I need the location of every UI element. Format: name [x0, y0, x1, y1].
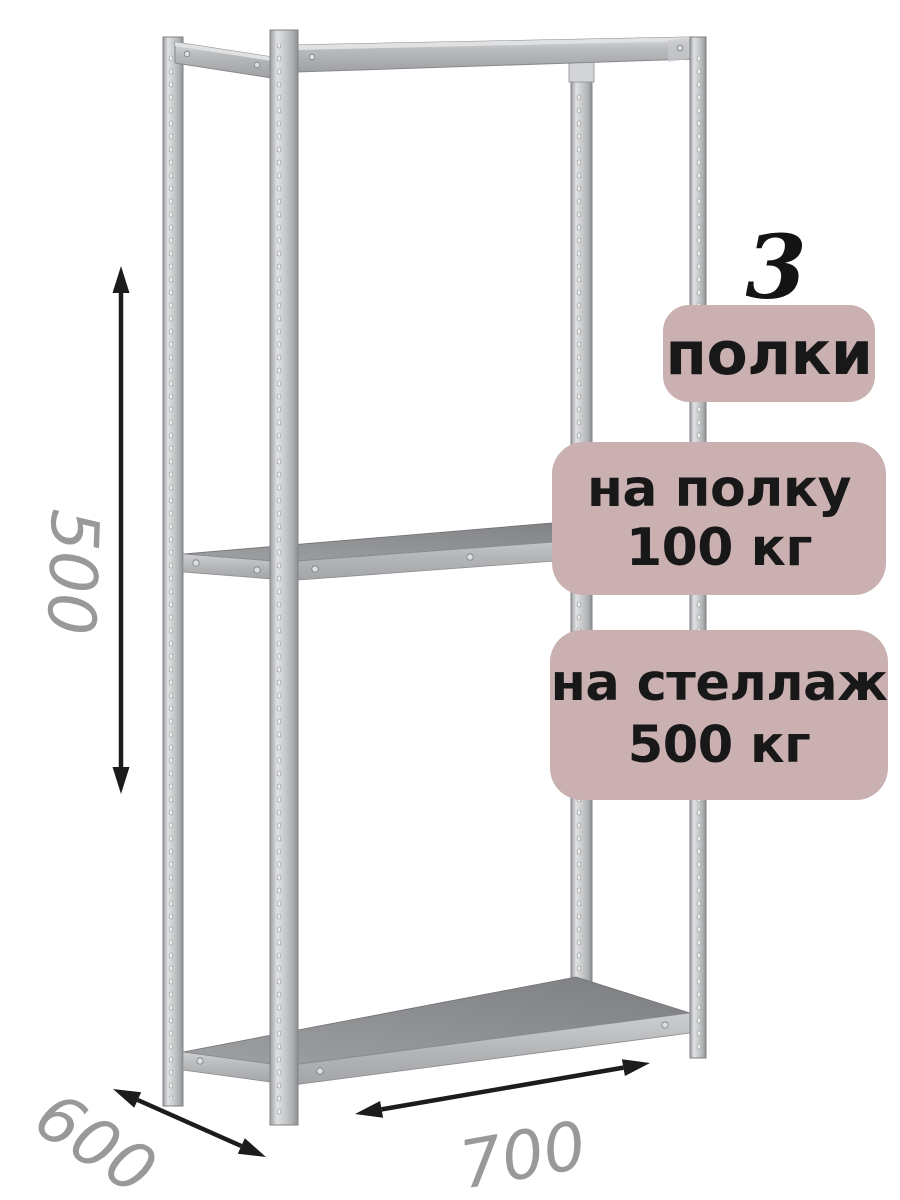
bolt: [184, 51, 190, 57]
per-rack-load-text: на стеллаж: [551, 653, 888, 715]
per-rack-load-value: 500 кг: [628, 715, 810, 777]
bolt: [193, 560, 199, 566]
shelf-count-badge: полки: [663, 305, 875, 402]
height-arrow: [113, 266, 130, 794]
bolt: [254, 62, 260, 68]
bolt: [254, 567, 260, 573]
shelf-count-label: полки: [666, 319, 873, 389]
top-frame: [175, 37, 694, 78]
bolt: [662, 1022, 668, 1028]
bolt: [317, 1068, 323, 1074]
bolt: [312, 566, 318, 572]
post-front-left: [270, 30, 298, 1125]
bolt: [467, 554, 473, 560]
per-rack-load-badge: на стеллаж 500 кг: [550, 630, 888, 800]
per-shelf-load-text: на полку: [587, 460, 851, 519]
shelf-count-number: 3: [745, 223, 806, 311]
rack-drawing: [0, 0, 900, 1200]
height-dimension-label: 500: [37, 508, 107, 636]
per-shelf-load-badge: на полку 100 кг: [552, 442, 886, 595]
post-back-left: [163, 37, 183, 1106]
bolt: [197, 1058, 203, 1064]
product-image: 3 полки на полку 100 кг на стеллаж 500 к…: [0, 0, 900, 1200]
bolt: [677, 45, 683, 51]
per-shelf-load-value: 100 кг: [626, 519, 812, 578]
bolt: [309, 54, 315, 60]
